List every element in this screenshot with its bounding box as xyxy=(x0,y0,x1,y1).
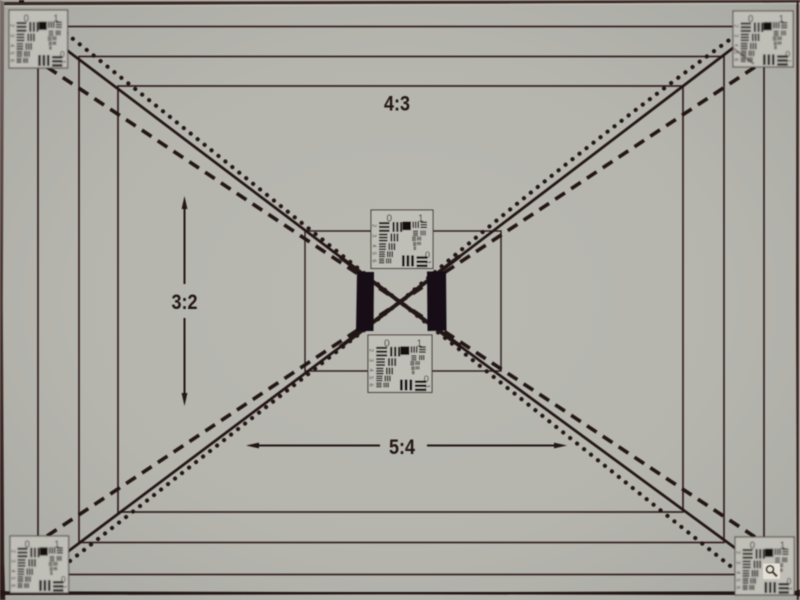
svg-text:4:3: 4:3 xyxy=(384,93,410,116)
svg-text:3:2: 3:2 xyxy=(172,291,198,314)
svg-text:5:4: 5:4 xyxy=(389,436,415,459)
